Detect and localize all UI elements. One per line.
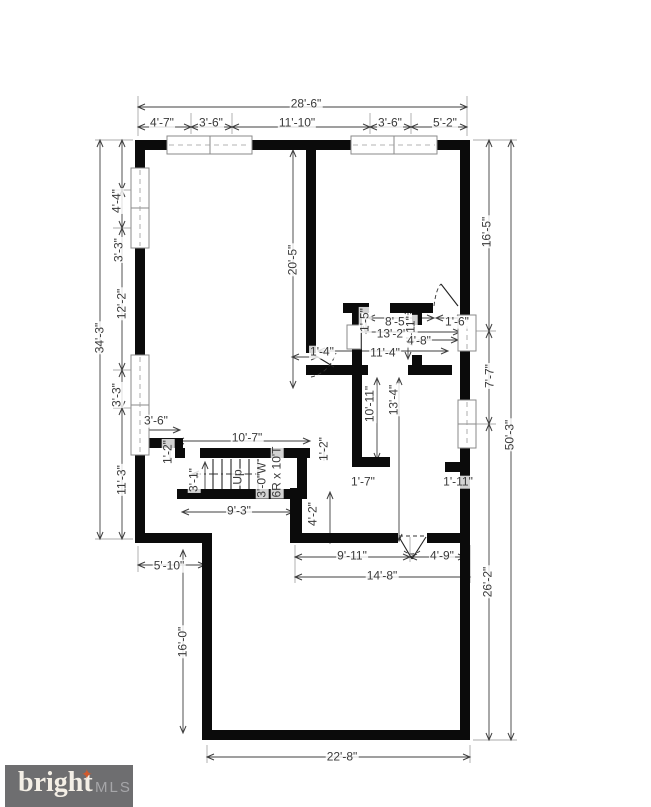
wall-bottom [202, 730, 470, 740]
dim-label: Up [232, 468, 245, 485]
dim-label: 5'-10" [153, 560, 186, 573]
dim-label: 4'-8" [406, 335, 432, 348]
dim-label: 3'-6" [143, 415, 169, 428]
dim-label: 12'-2" [116, 288, 129, 321]
dim-label: 3'-6" [377, 117, 403, 130]
dim-label: 1'-5" [359, 307, 372, 333]
door-swing [434, 284, 458, 306]
dim-label: 13'-4" [388, 384, 401, 417]
dim-label: 22'-8" [326, 751, 359, 764]
dim-label: 1'-2" [318, 436, 331, 462]
dim-label: 1'-4" [309, 346, 335, 359]
dim-label: 4'-7" [149, 117, 175, 130]
dim-label: 4'-4" [111, 188, 124, 214]
dim-label: 4'-9" [429, 550, 455, 563]
floor-plan-page: 28'-6"4'-7"3'-6"11'-10"3'-6"5'-2"4'-4"3'… [0, 0, 651, 807]
logo-mls-text: MLS [95, 779, 132, 796]
dim-label: 9'-11" [336, 550, 368, 563]
dim-label: 26'-2" [482, 566, 495, 599]
dim-label: 3'-3" [113, 237, 126, 263]
wall-left-step [135, 533, 212, 543]
dim-label: 7'-7" [484, 363, 497, 389]
dim-label: 1'-7" [350, 476, 376, 489]
dim-label: 3'-3" [111, 382, 124, 408]
dim-label: 1'-6" [444, 316, 470, 329]
dim-label: 14'-8" [366, 570, 399, 583]
brightmls-logo: bright ✦ MLS [5, 765, 133, 807]
dim-label: 28'-6" [290, 98, 323, 111]
dim-label: 10'-7" [231, 432, 264, 445]
dim-label: 16'-5" [481, 216, 494, 249]
dim-label: 9'-3" [226, 505, 252, 518]
floor-plan-svg [0, 0, 651, 807]
dim-label: 5'-2" [432, 117, 458, 130]
dim-label: 6R x 10'T [271, 446, 284, 499]
door-swing [399, 536, 426, 559]
star-icon: ✦ [81, 766, 93, 783]
dim-label: 10'-11" [364, 385, 377, 423]
dim-label: 11'-10" [278, 117, 316, 130]
dim-label: 20'-5" [287, 244, 300, 277]
dim-label: 1'-2" [162, 439, 175, 465]
dim-label: 3'-6" [198, 117, 224, 130]
dim-label: 34'-3" [94, 322, 107, 355]
dimension-lines [100, 107, 511, 757]
windows [131, 136, 476, 455]
wall-lower-left [202, 537, 212, 740]
staircase [192, 459, 258, 489]
dim-label: 11'-3" [116, 464, 129, 496]
dim-label: 11'-4" [369, 347, 401, 360]
dim-label: 3'-0"W [256, 461, 269, 498]
dim-label: 50'-3" [504, 419, 517, 452]
dim-label: 3'-1" [188, 467, 201, 493]
dim-label: 4'-2" [307, 501, 320, 527]
dim-label: 1'-11" [442, 476, 474, 489]
dim-label: 16'-0" [177, 626, 190, 659]
